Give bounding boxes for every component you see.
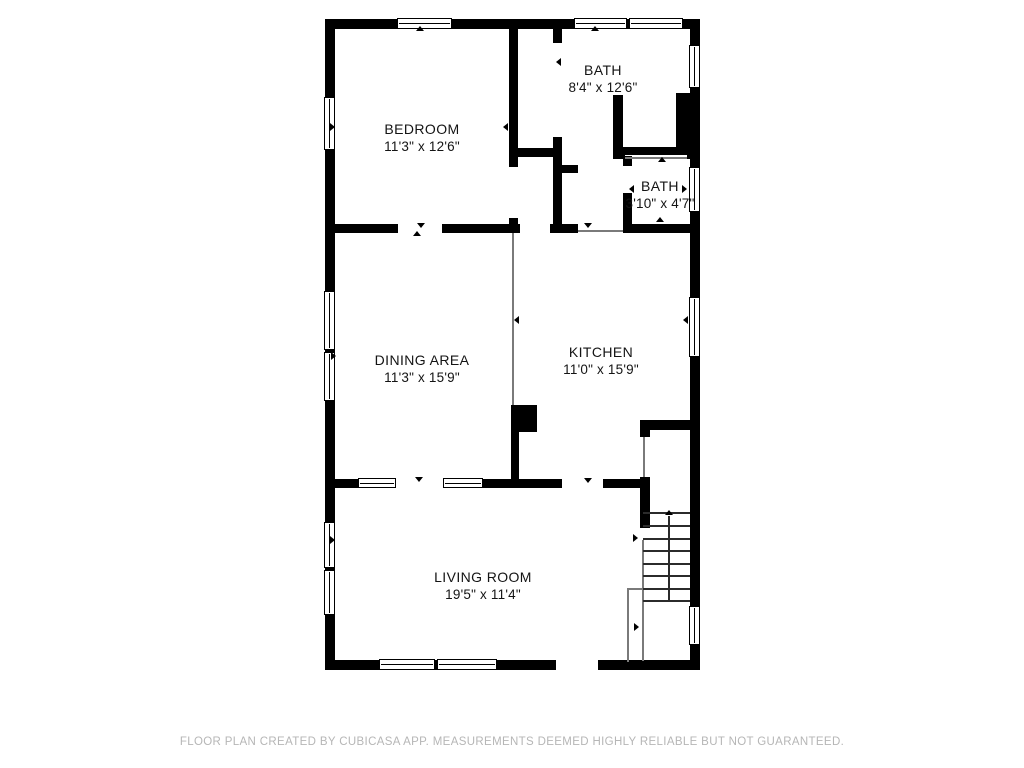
room-label: LIVING ROOM19'5" x 11'4"	[434, 569, 532, 603]
wall-segment	[325, 479, 358, 488]
wall-segment	[442, 224, 520, 233]
stair-up-arrow-icon	[665, 510, 673, 515]
floor-plan-page: BEDROOM11'3" x 12'6"BATH8'4" x 12'6"BATH…	[0, 0, 1024, 768]
room-label: KITCHEN11'0" x 15'9"	[563, 344, 639, 378]
wall-segment	[640, 420, 700, 430]
window	[379, 659, 435, 670]
wall-segment	[553, 137, 562, 224]
opening-marker-icon	[633, 534, 638, 542]
stair-tread	[643, 538, 690, 540]
opening-marker-icon	[415, 477, 423, 482]
room-name: BATH	[626, 178, 695, 195]
wall-segment	[325, 224, 398, 233]
opening-marker-icon	[584, 478, 592, 483]
floor-plan: BEDROOM11'3" x 12'6"BATH8'4" x 12'6"BATH…	[0, 0, 1024, 768]
thin-line	[578, 230, 623, 232]
window-pane-divider	[329, 572, 330, 613]
stair-tread	[643, 525, 690, 527]
room-name: BATH	[569, 62, 638, 79]
door-opening	[556, 659, 598, 671]
stair-tread	[643, 563, 690, 565]
room-label: BEDROOM11'3" x 12'6"	[384, 121, 460, 155]
wall-segment	[509, 148, 558, 157]
opening-marker-icon	[634, 623, 639, 631]
opening-marker-icon	[656, 217, 664, 222]
window-pane-divider	[439, 664, 495, 665]
opening-marker-icon	[503, 123, 508, 131]
wall-segment	[509, 27, 518, 152]
stair-tread	[643, 575, 690, 577]
window-pane-divider	[694, 299, 695, 355]
thin-line	[643, 437, 645, 477]
stair-tread	[643, 550, 690, 552]
wall-segment	[483, 479, 562, 488]
window	[443, 478, 483, 488]
opening-marker-icon	[330, 123, 335, 131]
window	[689, 606, 700, 645]
window-pane-divider	[694, 608, 695, 643]
room-dimensions: 19'5" x 11'4"	[434, 586, 532, 603]
wall-segment	[550, 224, 578, 233]
disclaimer-text: FLOOR PLAN CREATED BY CUBICASA APP. MEAS…	[0, 736, 1024, 748]
window-pane-divider	[631, 23, 681, 24]
room-dimensions: 11'0" x 15'9"	[563, 361, 639, 378]
opening-marker-icon	[417, 223, 425, 228]
room-name: LIVING ROOM	[434, 569, 532, 586]
window-pane-divider	[360, 483, 394, 484]
wall-segment	[613, 95, 623, 152]
window-pane-divider	[381, 664, 433, 665]
wall-segment	[676, 93, 700, 153]
window	[629, 18, 683, 29]
stair-tread	[643, 600, 690, 602]
window	[358, 478, 396, 488]
window-pane-divider	[445, 483, 481, 484]
room-dimensions: 8'4" x 12'6"	[569, 79, 638, 96]
room-label: BATH3'10" x 4'7"	[626, 178, 695, 212]
wall-segment	[509, 157, 518, 167]
window-pane-divider	[399, 23, 450, 24]
window	[689, 45, 700, 88]
room-name: KITCHEN	[563, 344, 639, 361]
window-pane-divider	[694, 47, 695, 86]
window-pane-divider	[329, 354, 330, 399]
window	[574, 18, 627, 29]
window	[324, 570, 335, 615]
room-dimensions: 11'3" x 15'9"	[375, 369, 470, 386]
window	[689, 297, 700, 357]
opening-marker-icon	[584, 223, 592, 228]
wall-segment	[640, 477, 650, 528]
opening-marker-icon	[591, 26, 599, 31]
room-dimensions: 3'10" x 4'7"	[626, 195, 695, 212]
opening-marker-icon	[330, 536, 335, 544]
wall-segment	[640, 430, 650, 437]
window	[437, 659, 497, 670]
thin-line	[627, 588, 629, 662]
window-pane-divider	[576, 23, 625, 24]
window	[324, 291, 335, 350]
room-name: BEDROOM	[384, 121, 460, 138]
wall-segment	[558, 165, 578, 173]
opening-marker-icon	[331, 352, 336, 360]
room-name: DINING AREA	[375, 352, 470, 369]
opening-marker-icon	[416, 26, 424, 31]
wall-segment	[511, 405, 537, 432]
stair-tread	[643, 588, 690, 590]
opening-marker-icon	[413, 231, 421, 236]
room-label: DINING AREA11'3" x 15'9"	[375, 352, 470, 386]
wall-segment	[511, 432, 519, 480]
opening-marker-icon	[658, 157, 666, 162]
room-label: BATH8'4" x 12'6"	[569, 62, 638, 96]
room-dimensions: 11'3" x 12'6"	[384, 138, 460, 155]
opening-marker-icon	[514, 316, 519, 324]
wall-segment	[553, 19, 562, 43]
wall-segment	[623, 224, 700, 233]
opening-marker-icon	[556, 58, 561, 66]
window-pane-divider	[329, 293, 330, 348]
window	[397, 18, 452, 29]
opening-marker-icon	[683, 316, 688, 324]
thin-line	[627, 588, 643, 590]
stair-direction-line	[668, 516, 670, 600]
window-pane-divider	[329, 524, 330, 566]
thin-line	[625, 157, 687, 159]
window	[324, 522, 335, 568]
